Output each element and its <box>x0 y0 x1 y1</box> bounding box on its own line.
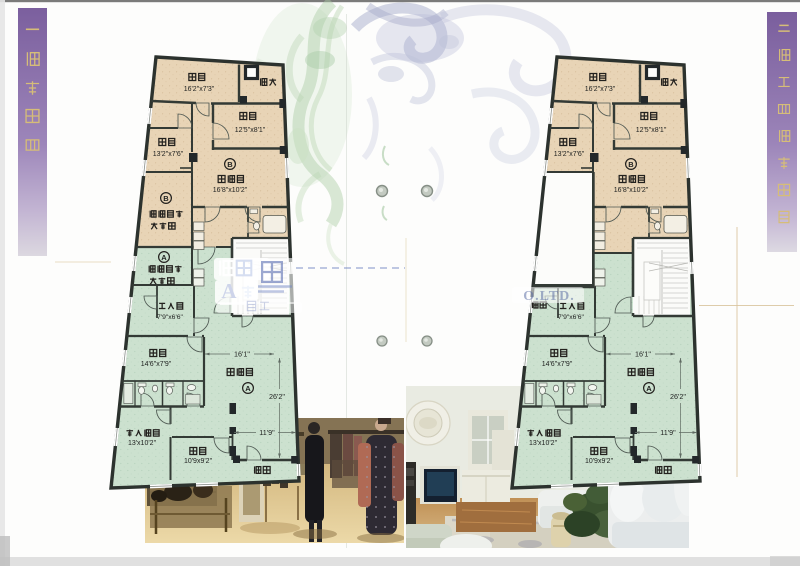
svg-text:16'1": 16'1" <box>635 350 651 359</box>
svg-text:A: A <box>245 384 251 393</box>
svg-text:B: B <box>628 160 634 169</box>
svg-text:16'8"x10'2": 16'8"x10'2" <box>614 187 649 194</box>
svg-text:13'2"x7'6": 13'2"x7'6" <box>153 151 184 158</box>
svg-text:14'6"x7'9": 14'6"x7'9" <box>141 361 172 368</box>
svg-text:B: B <box>163 194 169 203</box>
svg-text:10'9x9'2": 10'9x9'2" <box>184 458 213 465</box>
svg-text:13'x10'2": 13'x10'2" <box>529 440 558 447</box>
svg-text:7'9"x6'6": 7'9"x6'6" <box>558 314 585 321</box>
svg-text:12'5"x8'1": 12'5"x8'1" <box>636 127 667 134</box>
svg-text:O.LTD.: O.LTD. <box>523 289 574 304</box>
svg-text:26'2": 26'2" <box>670 392 686 401</box>
svg-text:12'5"x8'1": 12'5"x8'1" <box>235 127 266 134</box>
svg-text:10'9x9'2": 10'9x9'2" <box>585 458 614 465</box>
svg-text:A: A <box>161 253 167 262</box>
svg-text:11'9": 11'9" <box>660 428 676 437</box>
svg-text:26'2": 26'2" <box>269 392 285 401</box>
svg-text:16'8"x10'2": 16'8"x10'2" <box>213 187 248 194</box>
svg-text:13'2"x7'6": 13'2"x7'6" <box>554 151 585 158</box>
svg-text:13'x10'2": 13'x10'2" <box>128 440 157 447</box>
svg-text:7'9"x6'6": 7'9"x6'6" <box>157 314 184 321</box>
svg-text:A: A <box>646 384 652 393</box>
svg-text:14'6"x7'9": 14'6"x7'9" <box>542 361 573 368</box>
svg-text:16'2"x7'3": 16'2"x7'3" <box>585 86 616 93</box>
svg-text:16'1": 16'1" <box>234 350 250 359</box>
svg-text:16'2"x7'3": 16'2"x7'3" <box>184 86 215 93</box>
svg-text:11'9": 11'9" <box>259 428 275 437</box>
svg-text:B: B <box>227 160 233 169</box>
svg-text:A: A <box>221 279 237 303</box>
